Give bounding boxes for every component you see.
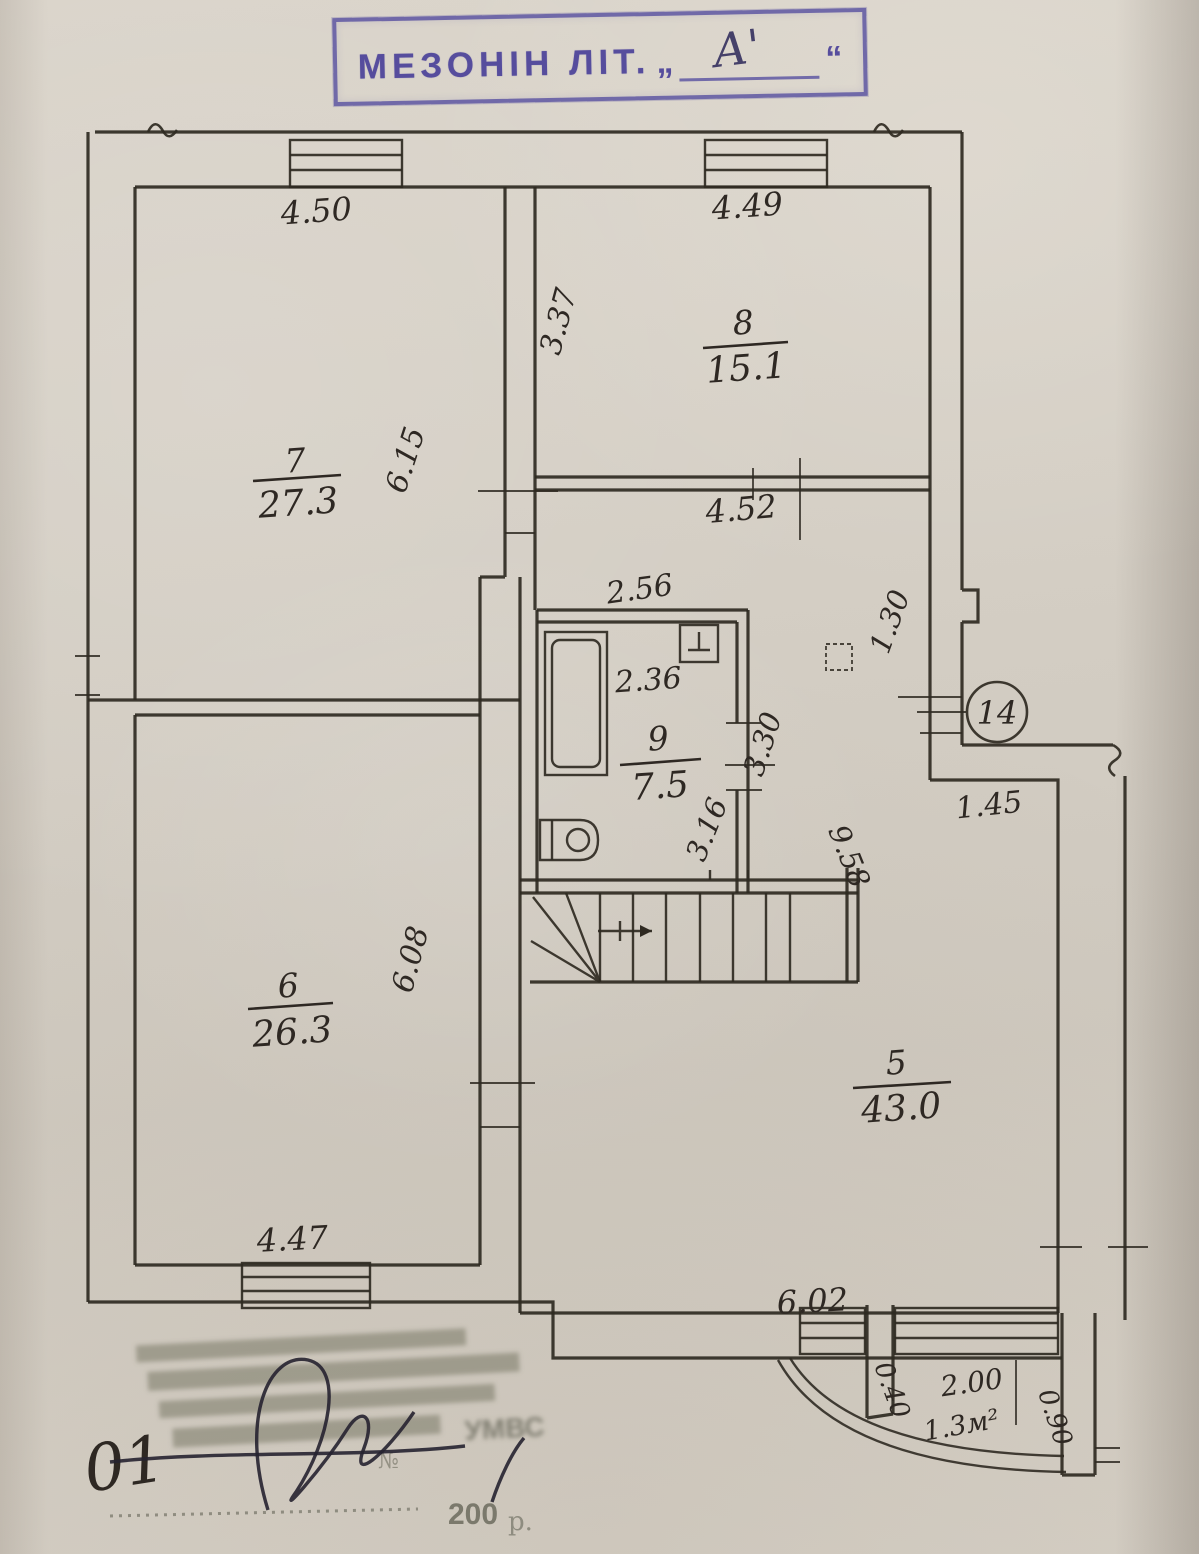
dim-bath-door: 3.30 xyxy=(736,708,788,780)
dim-room6-right: 6.08 xyxy=(385,923,436,997)
handwritten-number: 01 xyxy=(79,1422,171,1508)
sink xyxy=(680,625,718,662)
stamp-org-fragment: УМВС xyxy=(464,1411,546,1446)
dim-pier-right: 0.90 xyxy=(1031,1385,1077,1449)
scanned-floor-plan-page: 14 7 27.3 8 15.1 9 7.5 6 26.3 xyxy=(0,0,1199,1554)
mezzanine-stamp: МЕЗОНІН ЛІТ. „ А' “ xyxy=(332,8,868,106)
stair-winders xyxy=(531,893,600,982)
dim-bath-top: 2.56 xyxy=(603,568,675,612)
pier-balcony-right xyxy=(1062,1313,1095,1475)
dim-room5-bottom: 6.02 xyxy=(776,1280,849,1322)
window-room8-top xyxy=(705,140,827,187)
dim-below-room8: 4.52 xyxy=(703,487,778,531)
wall-bath-top xyxy=(537,610,748,622)
window-room7-top xyxy=(290,140,402,187)
wall-break-top-right xyxy=(874,124,903,136)
dim-balcony-width: 2.00 xyxy=(938,1362,1005,1403)
vent-shaft-mark xyxy=(826,644,852,670)
wall-room7-room6 xyxy=(88,700,520,715)
stamp-dotted-line xyxy=(110,1509,418,1516)
room-label-7: 7 27.3 xyxy=(253,440,341,527)
balcony-arc xyxy=(778,1358,1066,1472)
room-label-9: 9 7.5 xyxy=(620,718,701,809)
stamp-close-quote: “ xyxy=(825,39,843,78)
stamp-letter-line: А' xyxy=(679,36,820,82)
stair-treads xyxy=(600,893,790,982)
room-7-area: 27.3 xyxy=(256,480,340,527)
stamp-year: 200 xyxy=(448,1498,498,1531)
dim-room6-bottom: 4.47 xyxy=(255,1218,330,1260)
balcony-door-window xyxy=(895,1308,1058,1354)
bathtub xyxy=(545,632,607,775)
wall-break-top-left xyxy=(148,124,177,136)
staircase xyxy=(531,870,790,982)
room-8-area: 15.1 xyxy=(705,345,788,391)
central-wall-lower xyxy=(480,577,520,1313)
stair-arrow-head xyxy=(640,925,652,937)
dim-bath-inner: 2.36 xyxy=(613,661,683,701)
room-5-number: 5 xyxy=(884,1042,908,1082)
central-wall-upper xyxy=(480,187,535,610)
stamp-year-suffix: р. xyxy=(508,1507,533,1537)
room-label-5: 5 43.0 xyxy=(853,1042,951,1132)
wall-room8-bottom xyxy=(535,477,930,490)
room-label-8: 8 15.1 xyxy=(703,302,788,391)
dimension-labels: 4.50 4.49 3.37 6.15 4.52 2.56 2.36 3.30 … xyxy=(255,185,1078,1450)
room-9-area: 7.5 xyxy=(630,764,690,809)
marker-point-label: 14 xyxy=(977,694,1018,732)
dim-top-right: 4.49 xyxy=(709,185,784,228)
dim-right-step: 1.45 xyxy=(954,785,1024,827)
stamp-letter: А' xyxy=(710,19,764,78)
dim-room7-right: 6.15 xyxy=(379,423,433,497)
dim-pier-left: 0.40 xyxy=(868,1358,916,1423)
floor-plan-svg: 14 7 27.3 8 15.1 9 7.5 6 26.3 xyxy=(0,0,1199,1554)
inner-wall-right-step xyxy=(930,780,1058,1313)
wall-stairs-top xyxy=(520,880,858,893)
stamp-open-quote: „ xyxy=(656,43,674,82)
room-5-area: 43.0 xyxy=(859,1085,943,1132)
stamp-title: МЕЗОНІН ЛІТ. xyxy=(357,42,650,88)
outer-wall-right xyxy=(962,132,978,745)
marker-point-14: 14 xyxy=(967,682,1027,742)
room-6-area: 26.3 xyxy=(250,1009,334,1056)
dim-top-left: 4.50 xyxy=(278,190,353,233)
bottom-stamp: УМВС № 200 р. 01 xyxy=(79,1325,545,1537)
dim-balcony-area: 1.3м² xyxy=(921,1404,1001,1448)
dim-room8-left: 3.37 xyxy=(533,284,584,358)
dim-right-notch: 1.30 xyxy=(863,585,917,657)
dim-room5-upper: 9.58 xyxy=(821,820,877,893)
room-7-number: 7 xyxy=(283,440,307,480)
room-9-number: 9 xyxy=(646,718,670,758)
wall-break-right xyxy=(1109,745,1120,776)
room-8-number: 8 xyxy=(731,302,755,342)
room-6-number: 6 xyxy=(276,965,300,1005)
washbasin xyxy=(540,820,598,860)
outer-wall-right-step xyxy=(962,745,1125,1320)
room-label-6: 6 26.3 xyxy=(248,965,334,1056)
